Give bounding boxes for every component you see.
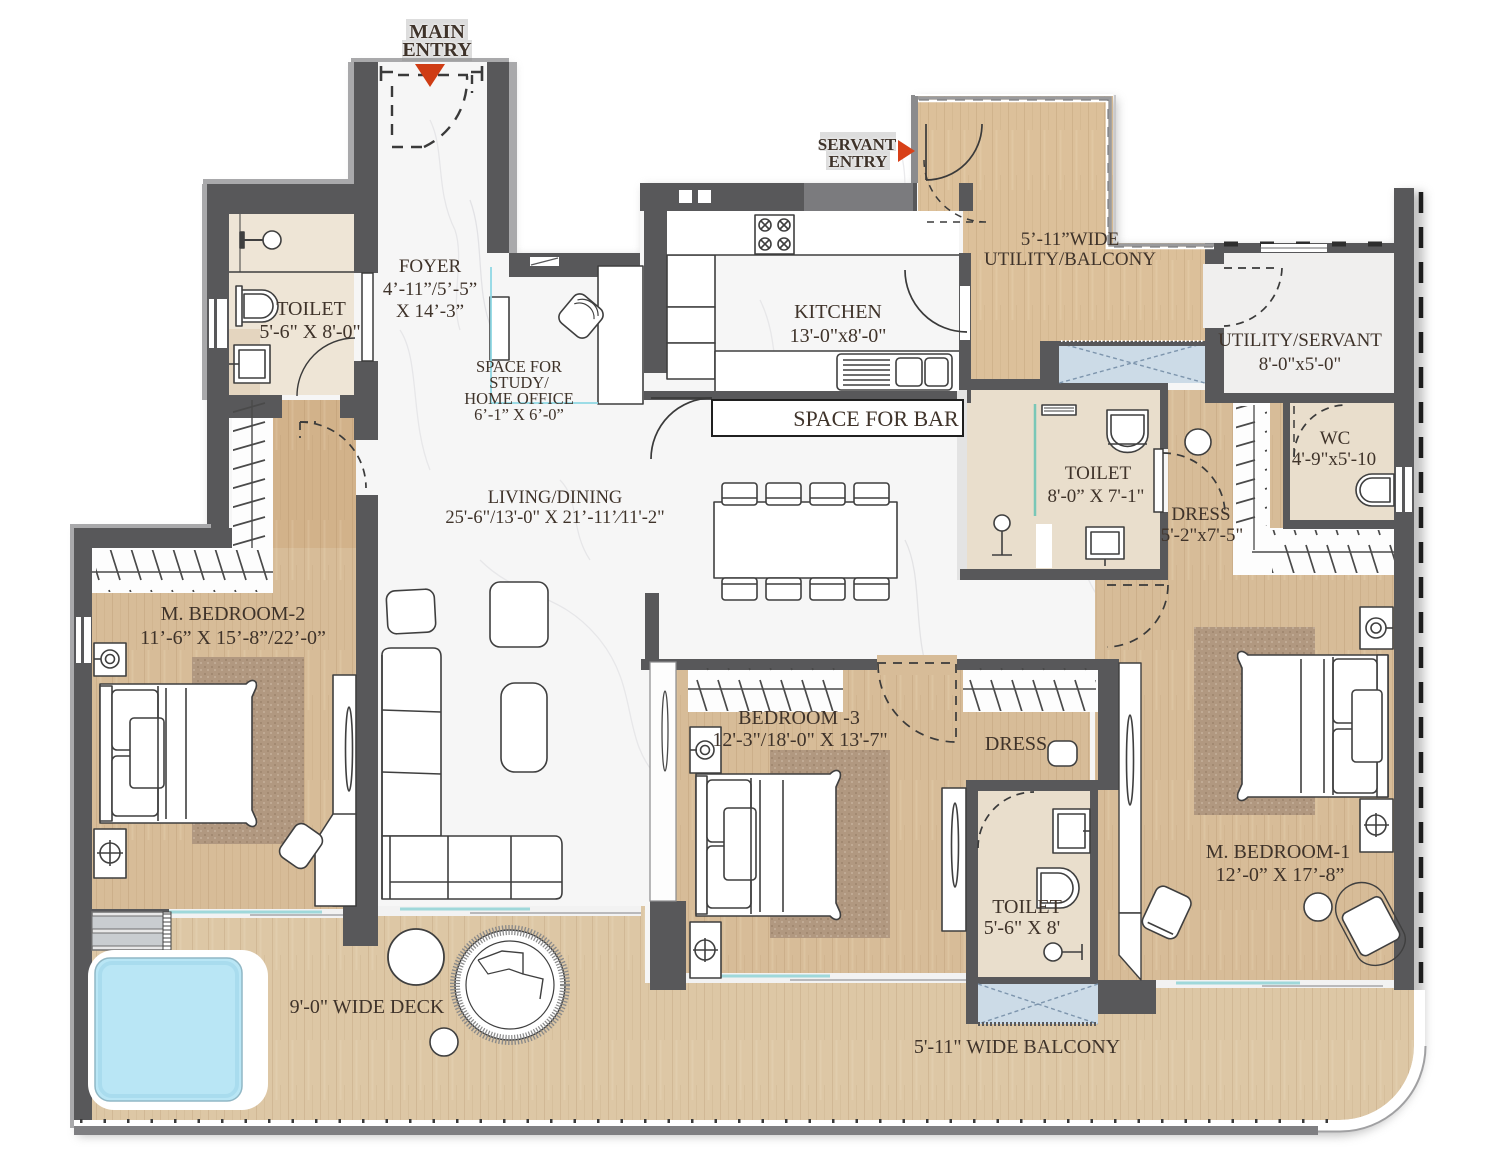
svg-text:12'-3"/18'-0" X 13'-7": 12'-3"/18'-0" X 13'-7" <box>712 729 887 751</box>
svg-text:TOILET: TOILET <box>992 896 1062 918</box>
svg-text:BEDROOM -3: BEDROOM -3 <box>738 707 860 729</box>
svg-text:9'-0" WIDE DECK: 9'-0" WIDE DECK <box>290 996 445 1018</box>
svg-text:UTILITY/BALCONY: UTILITY/BALCONY <box>984 249 1156 270</box>
svg-text:ENTRY: ENTRY <box>402 39 472 61</box>
svg-text:5'-2"x7'-5": 5'-2"x7'-5" <box>1161 525 1244 546</box>
svg-text:LIVING/DINING: LIVING/DINING <box>488 488 623 508</box>
svg-text:25'-6"/13'-0" X 21’-11’⁄11'-2": 25'-6"/13'-0" X 21’-11’⁄11'-2" <box>445 508 664 528</box>
svg-text:X 14’-3”: X 14’-3” <box>396 301 464 322</box>
svg-text:DRESS: DRESS <box>1171 504 1230 525</box>
svg-text:6’-1” X 6’-0”: 6’-1” X 6’-0” <box>474 405 564 424</box>
svg-text:5'-6" X 8'-0": 5'-6" X 8'-0" <box>259 321 360 343</box>
svg-text:M. BEDROOM-1: M. BEDROOM-1 <box>1206 841 1350 863</box>
svg-text:M. BEDROOM-2: M. BEDROOM-2 <box>161 603 305 625</box>
svg-text:SPACE FOR BAR: SPACE FOR BAR <box>793 406 959 431</box>
svg-text:4'-9"x5'-10: 4'-9"x5'-10 <box>1292 449 1376 470</box>
svg-text:TOILET: TOILET <box>1065 463 1132 484</box>
svg-text:8'-0"x5'-0": 8'-0"x5'-0" <box>1259 354 1342 375</box>
svg-text:5'-6" X 8': 5'-6" X 8' <box>984 917 1060 939</box>
svg-text:13'-0"x8'-0": 13'-0"x8'-0" <box>790 325 887 347</box>
svg-text:DRESS: DRESS <box>985 733 1047 755</box>
svg-text:UTILITY/SERVANT: UTILITY/SERVANT <box>1218 330 1382 351</box>
svg-text:5'-11" WIDE BALCONY: 5'-11" WIDE BALCONY <box>914 1036 1120 1058</box>
svg-text:12’-0” X 17’-8”: 12’-0” X 17’-8” <box>1216 864 1345 886</box>
svg-text:FOYER: FOYER <box>399 256 462 277</box>
svg-text:ENTRY: ENTRY <box>829 152 888 171</box>
svg-text:8'-0” X 7'-1": 8'-0” X 7'-1" <box>1048 486 1145 507</box>
svg-text:WC: WC <box>1320 428 1351 449</box>
svg-text:5’-11”WIDE: 5’-11”WIDE <box>1021 229 1119 250</box>
svg-text:11’-6” X 15’-8”/22’-0”: 11’-6” X 15’-8”/22’-0” <box>140 627 326 649</box>
svg-text:4’-11”/5’-5”: 4’-11”/5’-5” <box>383 279 477 300</box>
svg-text:TOILET: TOILET <box>276 298 346 320</box>
svg-text:KITCHEN: KITCHEN <box>794 301 882 323</box>
